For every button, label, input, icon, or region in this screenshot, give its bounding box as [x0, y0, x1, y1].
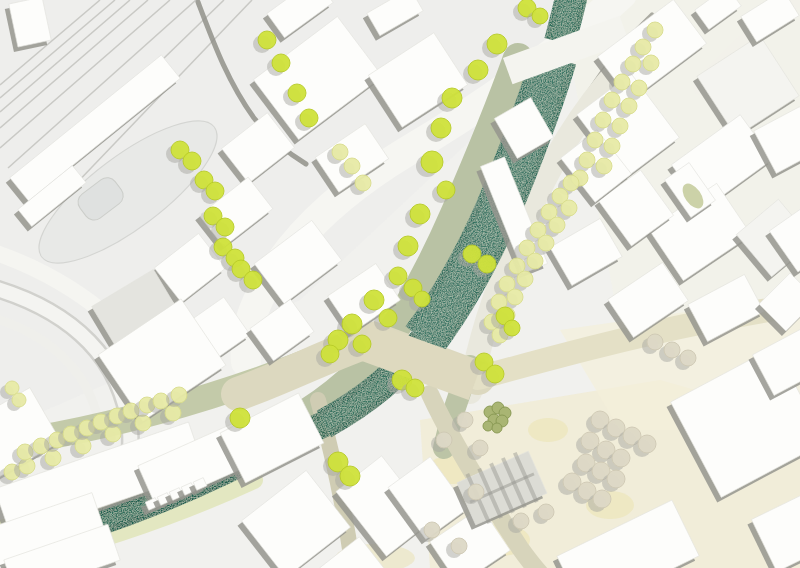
riverside-tree: [258, 31, 276, 49]
site-plan-svg: [0, 0, 800, 568]
riverside-tree: [206, 182, 224, 200]
existing-pale-tree: [643, 55, 659, 71]
existing-beige-tree: [472, 440, 488, 456]
existing-pale-tree: [344, 158, 360, 174]
riverside-tree: [406, 379, 424, 397]
riverside-tree: [478, 255, 496, 273]
existing-beige-tree: [647, 334, 663, 350]
meadow-spot: [528, 418, 568, 442]
existing-beige-tree: [468, 484, 484, 500]
existing-pale-tree: [647, 22, 663, 38]
existing-pale-tree: [12, 393, 26, 407]
existing-pale-tree: [75, 438, 91, 454]
riverside-tree: [487, 34, 507, 54]
existing-pale-tree: [538, 235, 554, 251]
riverside-tree: [468, 60, 488, 80]
existing-pale-tree: [332, 144, 348, 160]
existing-pale-tree: [355, 175, 371, 191]
riverside-tree: [272, 54, 290, 72]
existing-pale-tree: [612, 118, 628, 134]
riverside-tree: [410, 204, 430, 224]
existing-pale-tree: [105, 426, 121, 442]
existing-pale-tree: [561, 200, 577, 216]
plaza-hedge: [483, 421, 493, 431]
existing-beige-tree: [638, 435, 656, 453]
riverside-tree: [230, 408, 250, 428]
riverside-tree: [340, 466, 360, 486]
riverside-tree: [431, 118, 451, 138]
riverside-tree: [216, 218, 234, 236]
riverside-tree: [414, 291, 430, 307]
existing-beige-tree: [538, 504, 554, 520]
riverside-tree: [421, 151, 443, 173]
existing-pale-tree: [621, 98, 637, 114]
existing-pale-tree: [596, 158, 612, 174]
existing-pale-tree: [631, 80, 647, 96]
riverside-tree: [389, 267, 407, 285]
existing-beige-tree: [457, 412, 473, 428]
existing-pale-tree: [563, 175, 579, 191]
existing-beige-tree: [451, 538, 467, 554]
existing-pale-tree: [171, 387, 187, 403]
riverside-tree: [353, 335, 371, 353]
riverside-tree: [300, 109, 318, 127]
riverside-tree: [342, 314, 362, 334]
existing-pale-tree: [604, 138, 620, 154]
riverside-tree: [183, 152, 201, 170]
riverside-tree: [437, 181, 455, 199]
existing-beige-tree: [513, 513, 529, 529]
existing-pale-tree: [635, 39, 651, 55]
existing-pale-tree: [517, 271, 533, 287]
riverside-tree: [321, 345, 339, 363]
existing-pale-tree: [165, 405, 181, 421]
existing-pale-tree: [135, 415, 151, 431]
existing-pale-tree: [507, 289, 523, 305]
existing-pale-tree: [625, 56, 641, 72]
existing-pale-tree: [527, 253, 543, 269]
existing-beige-tree: [612, 449, 630, 467]
riverside-tree: [364, 290, 384, 310]
existing-pale-tree: [45, 450, 61, 466]
riverside-tree: [486, 365, 504, 383]
existing-beige-tree: [680, 350, 696, 366]
riverside-tree: [398, 236, 418, 256]
riverside-tree: [244, 271, 262, 289]
existing-beige-tree: [664, 342, 680, 358]
existing-beige-tree: [436, 432, 452, 448]
existing-beige-tree: [593, 490, 611, 508]
riverside-tree: [532, 8, 548, 24]
existing-beige-tree: [424, 522, 440, 538]
riverside-tree: [288, 84, 306, 102]
plaza-hedge: [492, 423, 502, 433]
masterplan-view: [0, 0, 800, 568]
riverside-tree: [379, 309, 397, 327]
existing-pale-tree: [549, 217, 565, 233]
riverside-tree: [504, 320, 520, 336]
riverside-tree: [442, 88, 462, 108]
existing-beige-tree: [607, 470, 625, 488]
